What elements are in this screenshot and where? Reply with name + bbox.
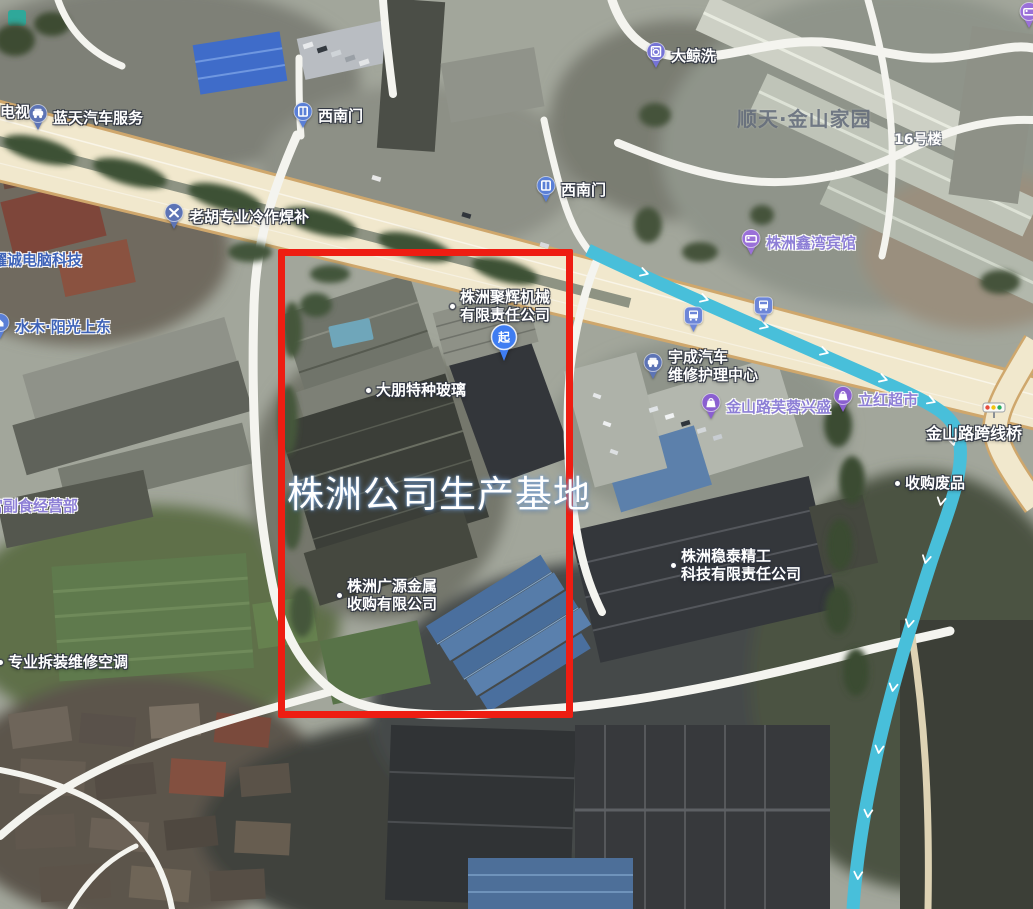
bus-pin-icon[interactable] [753,296,774,323]
poi-building-16[interactable]: 16号楼 [894,131,941,149]
poi-jinshan-bridge[interactable]: 金山路跨线桥 [926,425,1022,443]
tools-pin-icon[interactable] [164,203,184,230]
gate-pin-icon[interactable] [293,102,313,129]
traffic-light-icon [982,402,1006,419]
poi-label-line2: 收购有限公司 [347,595,437,613]
poi-gate-southwest-lower[interactable]: 西南门 [536,176,606,203]
shopping-bag-pin-icon[interactable] [833,386,853,413]
poi-label[interactable]: 宫副食经营部 [0,497,78,515]
poi-label[interactable]: 电视 [0,103,30,121]
poi-fushi-shop[interactable]: 宫副食经营部 [0,497,78,515]
route-start-pin-icon[interactable]: 起 [489,323,519,363]
poi-dot-icon[interactable] [895,481,900,486]
site-annotation-title: 株洲公司生产基地 [287,464,591,518]
poi-laohu-welding[interactable]: 老胡专业冷作焊补 [164,203,309,230]
poi-label[interactable]: 水木·阳光上东 [15,318,111,336]
poi-label-line2: 有限责任公司 [460,306,550,324]
poi-label[interactable]: 株洲鑫湾宾馆 [766,234,856,252]
bed-pin-icon[interactable] [741,229,761,256]
poi-label[interactable]: 收购废品 [905,474,965,492]
poi-label[interactable]: 大鲸洗 [671,47,716,65]
gate-pin-icon[interactable] [536,176,556,203]
bed-pin-icon[interactable] [1019,2,1033,29]
poi-label[interactable]: 耀诚电脑科技 [0,251,82,269]
car-pin-icon[interactable] [643,353,663,380]
poi-label-line1: 株洲广源金属 [347,577,437,595]
poi-label-line1: 株洲聚辉机械 [460,288,550,306]
poi-label[interactable]: 西南门 [561,181,606,199]
poi-juhui-machinery[interactable]: 株洲聚辉机械 有限责任公司 [450,288,550,324]
poi-guangyuan-metal[interactable]: 株洲广源金属 收购有限公司 [337,577,437,613]
poi-label[interactable]: 蓝天汽车服务 [53,109,143,127]
poi-dajing-wash[interactable]: 大鲸洗 [646,42,716,69]
poi-bus-stop-2[interactable] [753,296,774,323]
poi-label[interactable]: 大朋特种玻璃 [376,381,466,399]
poi-label[interactable]: 西南门 [318,107,363,125]
poi-dot-icon[interactable] [0,660,3,665]
house-pin-icon[interactable] [0,313,10,340]
poi-label[interactable]: 16号楼 [894,131,941,149]
wash-pin-icon[interactable] [646,42,666,69]
poi-hotel-pin-corner[interactable] [1019,2,1033,29]
poi-label[interactable]: 株洲广源金属 收购有限公司 [347,577,437,613]
poi-lantian-auto[interactable]: 蓝天汽车服务 [28,104,143,131]
poi-label-line1: 宇成汽车 [668,348,758,366]
poi-jinshanlu-furong[interactable]: 金山路芙蓉兴盛 [701,393,831,420]
poi-label[interactable]: 宇成汽车 维修护理中心 [668,348,758,384]
car-pin-icon[interactable] [28,104,48,131]
poi-zhuzhou-xinwan-hotel[interactable]: 株洲鑫湾宾馆 [741,229,856,256]
poi-label[interactable]: 株洲聚辉机械 有限责任公司 [460,288,550,324]
shopping-bag-pin-icon[interactable] [701,393,721,420]
poi-label[interactable]: 金山路跨线桥 [926,425,1022,443]
poi-label[interactable]: 立红超市 [858,391,918,409]
bus-pin-icon[interactable] [683,306,704,333]
poi-dot-icon[interactable] [450,304,455,309]
poi-label[interactable]: 老胡专业冷作焊补 [189,208,309,226]
poi-dapeng-glass[interactable]: 大朋特种玻璃 [366,381,466,399]
poi-scrap-recycling[interactable]: 收购废品 [895,474,965,492]
poi-label-line1: 株洲稳泰精工 [681,547,801,565]
poi-wentai-tech[interactable]: 株洲稳泰精工 科技有限责任公司 [671,547,801,583]
poi-shuimu-sunshine[interactable]: 水木·阳光上东 [0,313,111,340]
poi-yucheng-auto[interactable]: 宇成汽车 维修护理中心 [643,348,758,384]
poi-lihong-market[interactable]: 立红超市 [833,386,918,413]
poi-label[interactable]: 金山路芙蓉兴盛 [726,398,831,416]
poi-dot-icon[interactable] [366,388,371,393]
poi-label-line2: 科技有限责任公司 [681,565,801,583]
poi-ac-repair[interactable]: 专业拆装维修空调 [0,653,128,671]
poi-gate-southwest-upper[interactable]: 西南门 [293,102,363,129]
poi-label-line2: 维修护理中心 [668,366,758,384]
poi-label[interactable]: 专业拆装维修空调 [8,653,128,671]
poi-yaocheng-computer[interactable]: 耀诚电脑科技 [0,251,82,269]
estate-watermark-label: 顺天·金山家园 [737,103,872,132]
satellite-map-canvas[interactable]: 株洲公司生产基地 顺天·金山家园 起 电视 蓝天汽车服务 [0,0,1033,909]
poi-bus-stop-1[interactable] [683,306,704,333]
poi-dot-icon[interactable] [671,563,676,568]
poi-label[interactable]: 株洲稳泰精工 科技有限责任公司 [681,547,801,583]
poi-tv-partial[interactable]: 电视 [0,103,30,121]
start-pin-label: 起 [497,330,511,345]
poi-dot-icon[interactable] [337,593,342,598]
